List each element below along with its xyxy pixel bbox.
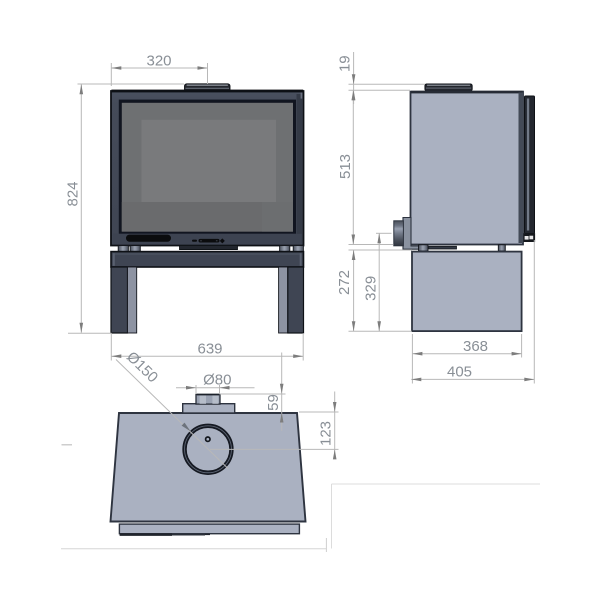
svg-text:272: 272: [336, 270, 353, 295]
svg-text:59: 59: [265, 394, 282, 411]
svg-text:320: 320: [146, 53, 171, 70]
svg-text:329: 329: [363, 276, 380, 301]
svg-text:Ø80: Ø80: [203, 372, 231, 389]
svg-text:368: 368: [463, 338, 488, 355]
svg-text:824: 824: [65, 181, 82, 206]
svg-text:405: 405: [447, 364, 472, 381]
svg-text:19: 19: [337, 55, 354, 72]
svg-text:513: 513: [337, 154, 354, 179]
svg-text:639: 639: [197, 341, 222, 358]
svg-text:123: 123: [318, 421, 335, 446]
